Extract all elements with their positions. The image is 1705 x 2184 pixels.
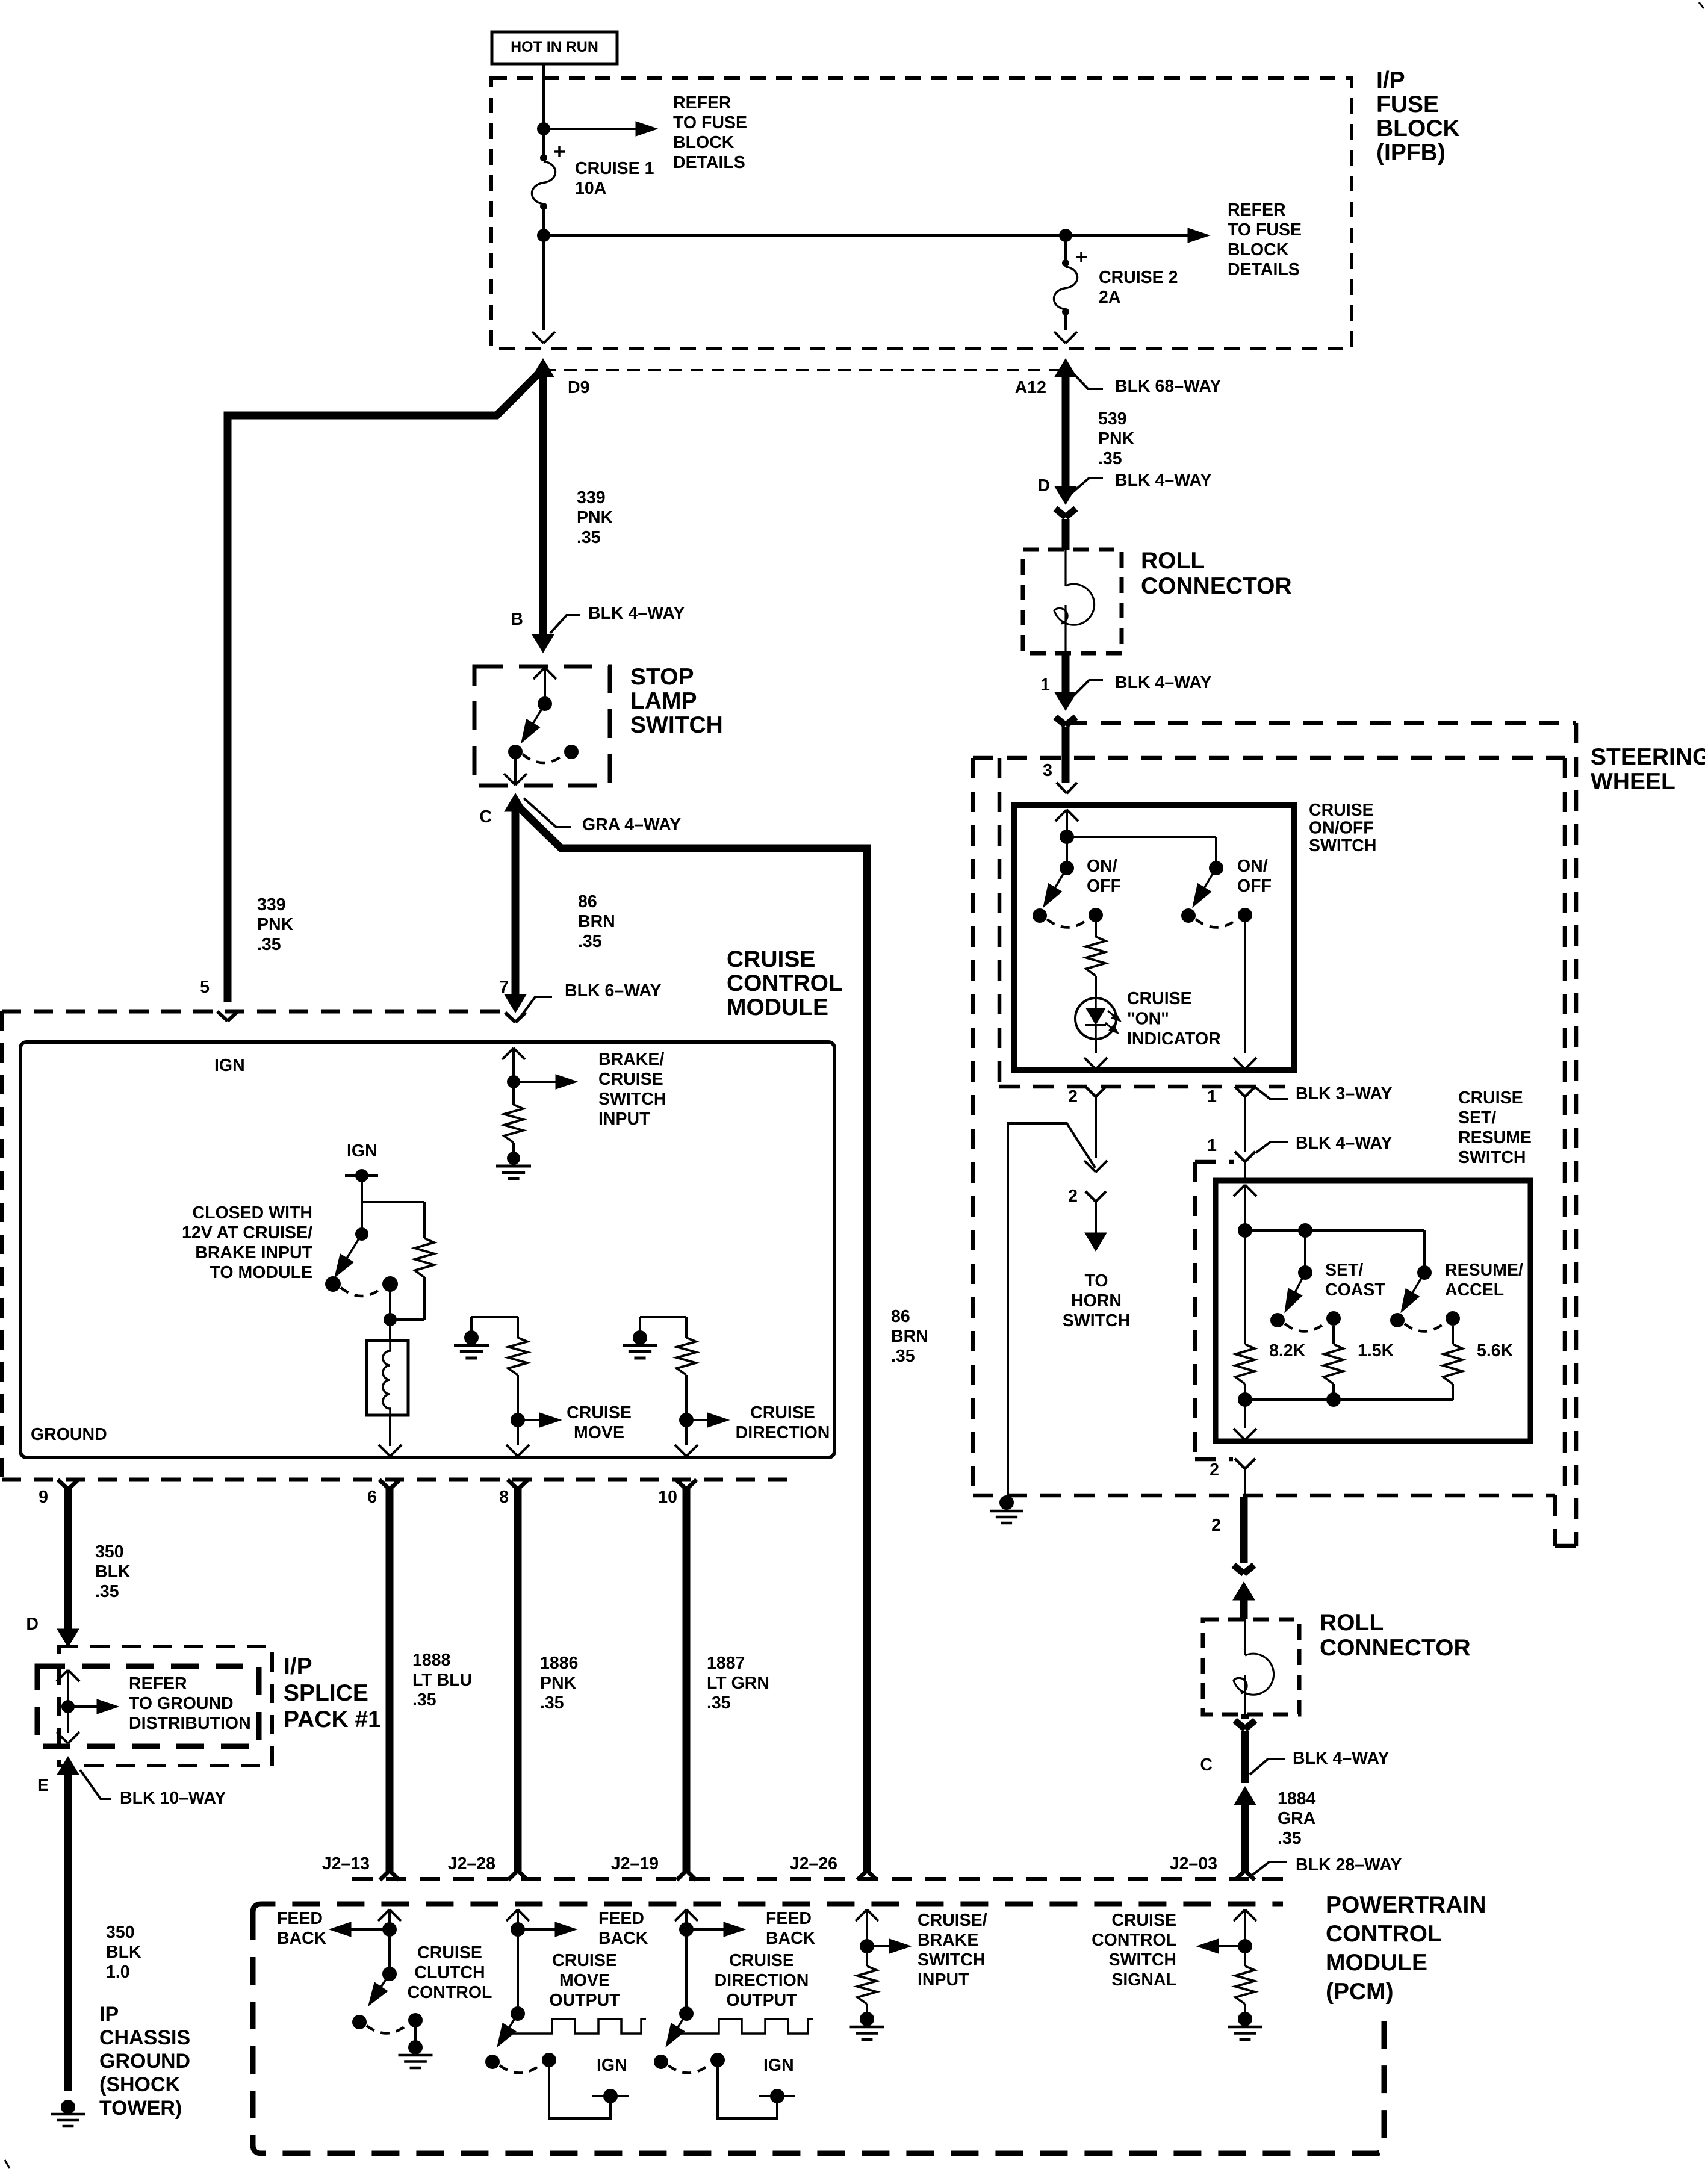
svg-text:1: 1 bbox=[1040, 675, 1050, 695]
svg-text:CONTROL: CONTROL bbox=[408, 1983, 492, 2002]
svg-text:5: 5 bbox=[200, 978, 210, 997]
svg-text:86: 86 bbox=[578, 892, 597, 911]
svg-text:COAST: COAST bbox=[1325, 1280, 1385, 1300]
svg-text:TO: TO bbox=[1084, 1271, 1108, 1291]
svg-text:BRAKE INPUT: BRAKE INPUT bbox=[195, 1243, 312, 1262]
svg-text:PACK #1: PACK #1 bbox=[284, 1707, 381, 1733]
svg-text:.35: .35 bbox=[577, 528, 601, 547]
svg-text:2: 2 bbox=[1211, 1516, 1221, 1535]
svg-text:(SHOCK: (SHOCK bbox=[99, 2073, 181, 2096]
svg-text:MODULE: MODULE bbox=[727, 994, 828, 1020]
svg-text:TO MODULE: TO MODULE bbox=[210, 1263, 312, 1282]
svg-text:SIGNAL: SIGNAL bbox=[1111, 1970, 1176, 1990]
svg-text:TOWER): TOWER) bbox=[99, 2097, 182, 2120]
svg-text:BRAKE/: BRAKE/ bbox=[598, 1050, 664, 1069]
svg-text:SWITCH: SWITCH bbox=[918, 1950, 985, 1970]
svg-text:10A: 10A bbox=[575, 179, 606, 198]
svg-text:BLK 68–WAY: BLK 68–WAY bbox=[1115, 377, 1221, 396]
svg-text:CRUISE: CRUISE bbox=[567, 1403, 632, 1422]
svg-text:OUTPUT: OUTPUT bbox=[726, 1991, 797, 2010]
svg-text:STOP: STOP bbox=[630, 664, 694, 690]
svg-text:2: 2 bbox=[1068, 1087, 1078, 1106]
svg-text:BLK 4–WAY: BLK 4–WAY bbox=[588, 604, 685, 623]
svg-text:J2–26: J2–26 bbox=[790, 1854, 837, 1873]
svg-text:1888: 1888 bbox=[412, 1651, 450, 1670]
svg-text:.35: .35 bbox=[707, 1693, 731, 1713]
svg-text:BLOCK: BLOCK bbox=[1376, 116, 1460, 141]
svg-text:DIRECTION: DIRECTION bbox=[715, 1971, 809, 1990]
svg-text:BLK 10–WAY: BLK 10–WAY bbox=[120, 1788, 226, 1808]
svg-text:5.6K: 5.6K bbox=[1477, 1341, 1514, 1360]
svg-text:PNK: PNK bbox=[577, 508, 613, 527]
svg-text:8.2K: 8.2K bbox=[1269, 1341, 1306, 1360]
svg-text:2A: 2A bbox=[1099, 288, 1120, 307]
svg-text:CHASSIS: CHASSIS bbox=[99, 2026, 190, 2049]
svg-text:.35: .35 bbox=[95, 1582, 119, 1601]
svg-text:INPUT: INPUT bbox=[598, 1109, 650, 1129]
svg-text:CRUISE: CRUISE bbox=[1111, 1911, 1176, 1930]
svg-text:RESUME: RESUME bbox=[1458, 1128, 1532, 1147]
svg-text:FUSE: FUSE bbox=[1376, 92, 1439, 117]
svg-text:CONTROL: CONTROL bbox=[727, 970, 843, 996]
svg-text:.35: .35 bbox=[540, 1693, 564, 1713]
svg-text:6: 6 bbox=[367, 1488, 377, 1507]
svg-text:HOT IN RUN: HOT IN RUN bbox=[511, 39, 598, 55]
svg-text:REFER: REFER bbox=[129, 1674, 187, 1693]
svg-text:SWITCH: SWITCH bbox=[630, 712, 723, 738]
svg-text:FEED: FEED bbox=[598, 1909, 644, 1928]
svg-text:MOVE: MOVE bbox=[574, 1423, 624, 1442]
svg-text:OFF: OFF bbox=[1237, 876, 1272, 896]
svg-text:ACCEL: ACCEL bbox=[1445, 1280, 1504, 1300]
svg-text:FEED: FEED bbox=[766, 1909, 812, 1928]
svg-text:10: 10 bbox=[658, 1488, 677, 1507]
svg-text:CRUISE: CRUISE bbox=[552, 1951, 617, 1970]
svg-text:J2–19: J2–19 bbox=[611, 1854, 659, 1873]
svg-text:BLK 6–WAY: BLK 6–WAY bbox=[565, 981, 662, 1000]
svg-text:GRA 4–WAY: GRA 4–WAY bbox=[582, 815, 681, 834]
svg-text:ROLL: ROLL bbox=[1320, 1610, 1384, 1636]
svg-text:D9: D9 bbox=[568, 378, 589, 397]
svg-text:GROUND: GROUND bbox=[31, 1425, 107, 1444]
svg-text:CRUISE: CRUISE bbox=[598, 1070, 663, 1089]
svg-text:SWITCH: SWITCH bbox=[1109, 1950, 1176, 1970]
svg-text:GROUND: GROUND bbox=[99, 2050, 190, 2073]
svg-text:CRUISE: CRUISE bbox=[417, 1943, 482, 1962]
svg-text:J2–28: J2–28 bbox=[448, 1854, 495, 1873]
svg-text:E: E bbox=[37, 1776, 49, 1795]
svg-text:DISTRIBUTION: DISTRIBUTION bbox=[129, 1714, 251, 1733]
svg-text:.35: .35 bbox=[578, 932, 602, 951]
svg-text:350: 350 bbox=[106, 1923, 135, 1942]
svg-text:.35: .35 bbox=[257, 935, 281, 954]
svg-text:CLOSED WITH: CLOSED WITH bbox=[193, 1203, 313, 1223]
svg-text:1.0: 1.0 bbox=[106, 1962, 130, 1982]
svg-text:BLK 4–WAY: BLK 4–WAY bbox=[1293, 1749, 1390, 1768]
svg-text:GRA: GRA bbox=[1278, 1809, 1315, 1828]
svg-text:PNK: PNK bbox=[257, 915, 294, 934]
svg-text:CRUISE: CRUISE bbox=[1309, 801, 1374, 820]
svg-text:12V AT CRUISE/: 12V AT CRUISE/ bbox=[182, 1223, 312, 1242]
svg-text:CRUISE: CRUISE bbox=[727, 946, 815, 972]
svg-text:CRUISE/: CRUISE/ bbox=[918, 1911, 987, 1930]
svg-text:SET/: SET/ bbox=[1458, 1108, 1496, 1128]
svg-text:1884: 1884 bbox=[1278, 1789, 1316, 1808]
svg-text:BLK 4–WAY: BLK 4–WAY bbox=[1296, 1134, 1393, 1153]
svg-text:IGN: IGN bbox=[347, 1141, 377, 1161]
svg-text:.35: .35 bbox=[891, 1347, 915, 1366]
svg-text:SPLICE: SPLICE bbox=[284, 1680, 368, 1706]
svg-text:MOVE: MOVE bbox=[559, 1971, 610, 1990]
svg-text:FEED: FEED bbox=[277, 1909, 323, 1928]
svg-text:1887: 1887 bbox=[707, 1654, 745, 1673]
svg-text:SWITCH: SWITCH bbox=[1458, 1148, 1526, 1167]
svg-text:CONTROL: CONTROL bbox=[1326, 1921, 1442, 1947]
svg-text:IGN: IGN bbox=[597, 2056, 627, 2075]
svg-text:LAMP: LAMP bbox=[630, 688, 697, 714]
svg-text:IGN: IGN bbox=[763, 2056, 794, 2075]
svg-text:C: C bbox=[479, 807, 492, 827]
svg-text:BLK: BLK bbox=[95, 1562, 131, 1581]
svg-text:ON/OFF: ON/OFF bbox=[1309, 819, 1374, 838]
svg-text:OFF: OFF bbox=[1087, 876, 1121, 896]
svg-text:CRUISE: CRUISE bbox=[1127, 989, 1192, 1008]
svg-text:ON/: ON/ bbox=[1237, 857, 1268, 876]
svg-text:9: 9 bbox=[39, 1488, 48, 1507]
svg-text:BLOCK: BLOCK bbox=[673, 133, 734, 152]
svg-text:B: B bbox=[511, 610, 523, 629]
svg-text:DIRECTION: DIRECTION bbox=[736, 1423, 830, 1442]
svg-text:TO GROUND: TO GROUND bbox=[129, 1694, 234, 1713]
svg-text:LT GRN: LT GRN bbox=[707, 1674, 769, 1693]
svg-text:BLK 4–WAY: BLK 4–WAY bbox=[1115, 471, 1212, 490]
svg-text:STEERING: STEERING bbox=[1591, 744, 1705, 770]
svg-text:SWITCH: SWITCH bbox=[1309, 836, 1376, 855]
svg-text:SET/: SET/ bbox=[1325, 1261, 1363, 1280]
svg-text:BRAKE: BRAKE bbox=[918, 1931, 978, 1950]
svg-text:REFER: REFER bbox=[1228, 200, 1286, 220]
svg-text:RESUME/: RESUME/ bbox=[1445, 1261, 1523, 1280]
svg-text:7: 7 bbox=[499, 978, 509, 997]
svg-text:INDICATOR: INDICATOR bbox=[1127, 1029, 1221, 1049]
svg-text:INPUT: INPUT bbox=[918, 1970, 969, 1990]
svg-text:A12: A12 bbox=[1015, 378, 1046, 397]
svg-text:SWITCH: SWITCH bbox=[1063, 1311, 1130, 1330]
svg-text:TO FUSE: TO FUSE bbox=[1228, 220, 1302, 240]
svg-text:POWERTRAIN: POWERTRAIN bbox=[1326, 1892, 1486, 1918]
svg-text:.35: .35 bbox=[412, 1690, 436, 1710]
svg-text:(IPFB): (IPFB) bbox=[1376, 140, 1446, 166]
svg-text:BLK: BLK bbox=[106, 1943, 141, 1962]
svg-text:CLUTCH: CLUTCH bbox=[414, 1963, 485, 1982]
svg-text:.35: .35 bbox=[1278, 1829, 1302, 1848]
svg-text:ROLL: ROLL bbox=[1141, 548, 1205, 574]
svg-text:BLK 4–WAY: BLK 4–WAY bbox=[1115, 673, 1212, 692]
svg-text:I/P: I/P bbox=[284, 1654, 312, 1680]
svg-text:PNK: PNK bbox=[1098, 429, 1135, 448]
svg-text:LT BLU: LT BLU bbox=[412, 1671, 472, 1690]
svg-text:CRUISE 1: CRUISE 1 bbox=[575, 159, 654, 178]
svg-text:539: 539 bbox=[1098, 409, 1127, 429]
svg-text:350: 350 bbox=[95, 1542, 124, 1562]
svg-text:2: 2 bbox=[1210, 1460, 1219, 1480]
svg-text:BLK 28–WAY: BLK 28–WAY bbox=[1296, 1855, 1402, 1875]
svg-text:WHEEL: WHEEL bbox=[1591, 769, 1675, 795]
svg-text:(PCM): (PCM) bbox=[1326, 1979, 1394, 2005]
svg-text:1.5K: 1.5K bbox=[1358, 1341, 1394, 1360]
svg-text:D: D bbox=[26, 1615, 39, 1634]
svg-text:DETAILS: DETAILS bbox=[1228, 260, 1300, 279]
svg-text:J2–03: J2–03 bbox=[1170, 1854, 1217, 1873]
svg-text:IGN: IGN bbox=[214, 1056, 245, 1075]
svg-text:BLOCK: BLOCK bbox=[1228, 240, 1289, 259]
svg-text:D: D bbox=[1037, 476, 1050, 495]
svg-text:.35: .35 bbox=[1098, 449, 1122, 468]
svg-text:BRN: BRN bbox=[578, 912, 615, 931]
svg-text:1886: 1886 bbox=[540, 1654, 578, 1673]
svg-text:IP: IP bbox=[99, 2003, 119, 2026]
svg-text:339: 339 bbox=[257, 895, 286, 914]
svg-text:BACK: BACK bbox=[598, 1929, 648, 1948]
svg-text:PNK: PNK bbox=[540, 1674, 577, 1693]
svg-text:DETAILS: DETAILS bbox=[673, 153, 745, 172]
svg-text:1: 1 bbox=[1207, 1136, 1217, 1155]
svg-text:SWITCH: SWITCH bbox=[598, 1090, 666, 1109]
svg-text:ON/: ON/ bbox=[1087, 857, 1117, 876]
svg-text:CONTROL: CONTROL bbox=[1092, 1931, 1176, 1950]
svg-text:86: 86 bbox=[891, 1307, 910, 1326]
svg-text:TO FUSE: TO FUSE bbox=[673, 113, 747, 132]
svg-text:CONNECTOR: CONNECTOR bbox=[1141, 573, 1292, 599]
svg-text:1: 1 bbox=[1207, 1087, 1217, 1106]
svg-text:BRN: BRN bbox=[891, 1327, 928, 1346]
svg-text:CRUISE: CRUISE bbox=[750, 1403, 815, 1422]
svg-text:2: 2 bbox=[1068, 1187, 1078, 1206]
svg-text:339: 339 bbox=[577, 488, 606, 507]
svg-text:I/P: I/P bbox=[1376, 67, 1405, 93]
svg-text:CRUISE: CRUISE bbox=[729, 1951, 794, 1970]
svg-text:REFER: REFER bbox=[673, 93, 731, 113]
svg-text:"ON": "ON" bbox=[1127, 1010, 1169, 1029]
svg-text:MODULE: MODULE bbox=[1326, 1950, 1427, 1976]
svg-text:CRUISE: CRUISE bbox=[1458, 1088, 1523, 1108]
svg-text:HORN: HORN bbox=[1071, 1291, 1122, 1311]
svg-text:8: 8 bbox=[499, 1488, 509, 1507]
svg-text:BLK 3–WAY: BLK 3–WAY bbox=[1296, 1084, 1393, 1103]
svg-text:J2–13: J2–13 bbox=[322, 1854, 370, 1873]
svg-text:BACK: BACK bbox=[766, 1929, 816, 1948]
svg-text:CONNECTOR: CONNECTOR bbox=[1320, 1635, 1471, 1661]
svg-text:C: C bbox=[1200, 1755, 1213, 1775]
svg-text:OUTPUT: OUTPUT bbox=[549, 1991, 620, 2010]
svg-text:CRUISE 2: CRUISE 2 bbox=[1099, 268, 1178, 287]
svg-text:3: 3 bbox=[1043, 761, 1052, 780]
svg-text:BACK: BACK bbox=[277, 1929, 327, 1948]
